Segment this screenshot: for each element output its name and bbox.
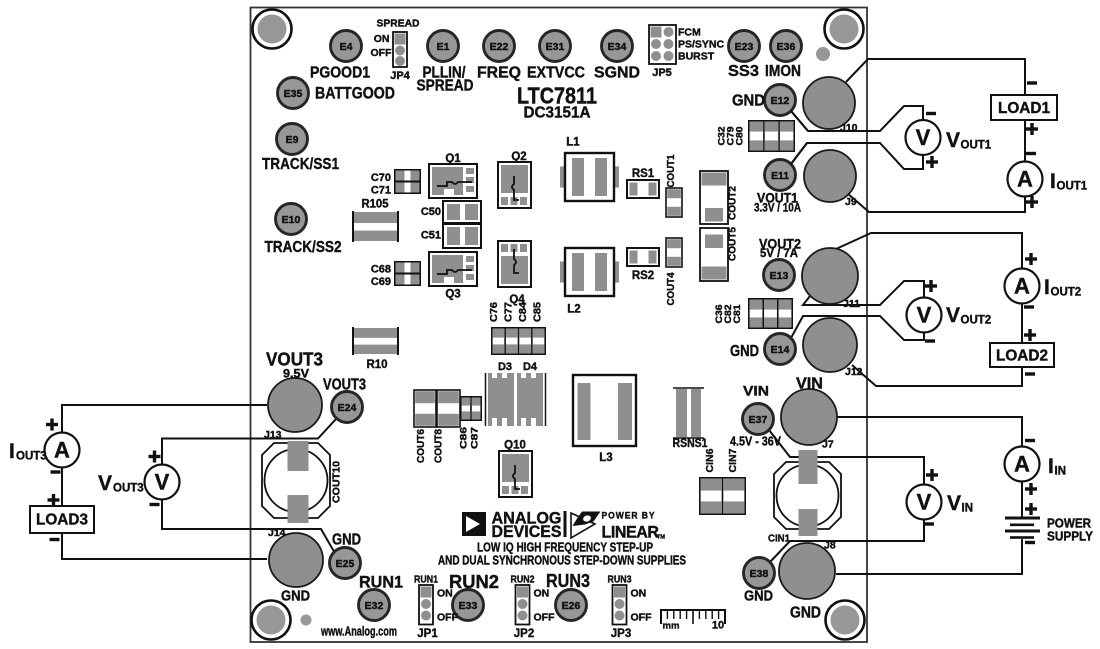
svg-text:I: I [9,440,15,463]
svg-text:mm: mm [663,621,680,632]
svg-text:E26: E26 [562,600,581,612]
svg-text:POWER BY: POWER BY [602,511,656,521]
svg-text:J13: J13 [264,429,282,441]
svg-text:FCM: FCM [678,27,701,39]
svg-text:E24: E24 [338,402,357,414]
svg-text:E31: E31 [546,41,565,53]
svg-text:JP1: JP1 [417,628,438,640]
svg-text:Q1: Q1 [445,153,461,165]
svg-text:OUT2: OUT2 [1051,287,1082,299]
svg-text:E37: E37 [749,414,768,426]
svg-text:OUT1: OUT1 [961,140,992,152]
svg-text:OFF: OFF [371,47,393,59]
svg-text:LOAD3: LOAD3 [36,512,88,529]
svg-text:VIN: VIN [796,376,823,393]
svg-text:C77: C77 [504,302,515,322]
svg-text:GND: GND [730,343,759,360]
svg-text:POWER: POWER [1047,517,1091,531]
svg-text:CIN6: CIN6 [704,448,716,472]
svg-text:V: V [98,472,112,495]
svg-text:BATTGOOD: BATTGOOD [315,84,395,103]
svg-text:C85: C85 [533,302,544,322]
svg-text:ON: ON [374,33,390,45]
svg-text:IN: IN [1055,466,1067,478]
svg-text:VOUT3: VOUT3 [323,377,366,394]
svg-text:E13: E13 [770,270,789,282]
svg-text:E10: E10 [282,214,301,226]
svg-text:COUT5: COUT5 [727,227,739,261]
svg-text:JP4: JP4 [390,70,410,82]
svg-text:GND: GND [790,605,821,622]
svg-text:E12: E12 [771,95,790,107]
svg-text:www.Analog.com: www.Analog.com [320,625,397,639]
svg-text:RS2: RS2 [632,270,654,282]
svg-text:CIN1: CIN1 [768,533,790,545]
svg-text:C80: C80 [735,127,745,146]
svg-text:PGOOD1: PGOOD1 [310,65,370,82]
svg-text:BURST: BURST [678,51,715,63]
svg-text:TM: TM [657,535,665,541]
svg-text:E11: E11 [771,170,789,182]
svg-text:E14: E14 [771,344,790,356]
svg-text:SGND: SGND [594,65,640,82]
svg-text:RUN2: RUN2 [511,575,535,586]
svg-text:COUT2: COUT2 [727,186,739,220]
svg-text:RUN2: RUN2 [449,572,499,592]
svg-text:GND: GND [732,93,765,110]
svg-text:OUT2: OUT2 [961,315,992,327]
svg-text:OFF: OFF [631,612,653,624]
svg-text:J12: J12 [845,366,863,378]
svg-text:J10: J10 [840,122,858,134]
svg-text:C81: C81 [732,305,742,324]
svg-text:I: I [1044,276,1050,299]
svg-text:9.5V: 9.5V [283,367,309,381]
svg-text:AND DUAL SYNCHRONOUS STEP-DOWN: AND DUAL SYNCHRONOUS STEP-DOWN SUPPLIES [438,554,686,568]
svg-text:L3: L3 [599,452,612,464]
svg-text:V: V [916,125,931,150]
svg-text:D3: D3 [498,361,512,373]
svg-text:RUN3: RUN3 [546,571,590,591]
svg-text:LOAD1: LOAD1 [998,100,1050,117]
svg-text:E25: E25 [336,558,355,570]
svg-text:C51: C51 [421,230,441,242]
svg-text:IMON: IMON [765,63,801,80]
svg-text:RUN1: RUN1 [414,575,438,586]
svg-text:C87: C87 [470,427,481,449]
svg-text:PS/SYNC: PS/SYNC [678,39,725,51]
svg-text:V: V [947,492,961,515]
svg-text:TRACK/SS2: TRACK/SS2 [265,239,342,256]
svg-text:J7: J7 [822,439,834,451]
svg-text:VIN: VIN [743,383,769,399]
svg-text:IN: IN [962,503,974,515]
svg-text:V: V [917,303,932,328]
svg-text:DC3151A: DC3151A [524,105,591,122]
svg-text:OUT3: OUT3 [16,451,47,463]
svg-text:A: A [1014,452,1030,477]
svg-text:E23: E23 [735,41,754,53]
svg-text:EXTVCC: EXTVCC [527,65,585,82]
svg-text:5V / 7A: 5V / 7A [760,248,798,260]
svg-text:E1: E1 [437,41,450,53]
svg-text:C50: C50 [421,206,441,218]
svg-text:A: A [1014,274,1030,299]
svg-text:E22: E22 [490,41,509,53]
svg-text:GND: GND [744,589,773,605]
svg-text:J11: J11 [843,298,860,310]
svg-text:RUN3: RUN3 [608,575,632,586]
svg-text:Q10: Q10 [504,440,526,452]
svg-text:Q3: Q3 [445,289,460,301]
svg-text:LINEAR: LINEAR [602,523,659,542]
svg-text:SUPPLY: SUPPLY [1047,530,1094,544]
svg-text:SS3: SS3 [728,63,759,80]
svg-text:COUT4: COUT4 [665,272,677,305]
svg-text:JP3: JP3 [611,628,631,640]
svg-text:V: V [946,129,960,152]
svg-text:C71: C71 [371,185,391,197]
svg-text:LOW IQ HIGH FREQUENCY STEP-UP: LOW IQ HIGH FREQUENCY STEP-UP [477,541,653,555]
svg-text:TRACK/SS1: TRACK/SS1 [262,156,339,173]
svg-text:A: A [54,438,70,463]
svg-text:R10: R10 [366,359,387,371]
svg-text:FREQ: FREQ [477,65,521,82]
svg-text:10: 10 [712,620,724,632]
svg-text:R105: R105 [362,199,390,211]
svg-text:OUT1: OUT1 [1057,181,1088,193]
svg-text:GND: GND [332,532,361,549]
svg-text:D4: D4 [523,361,538,373]
svg-text:E36: E36 [777,41,796,53]
svg-text:E4: E4 [340,41,353,53]
svg-text:C76: C76 [489,302,500,322]
svg-text:COUT6: COUT6 [415,429,427,463]
svg-text:SPREAD: SPREAD [417,78,474,95]
svg-text:C84: C84 [518,302,529,322]
svg-text:A: A [1017,167,1033,192]
svg-text:LOAD2: LOAD2 [996,348,1048,365]
svg-text:SPREAD: SPREAD [377,18,420,30]
svg-text:J8: J8 [824,540,836,552]
svg-text:L1: L1 [566,137,580,149]
svg-text:J9: J9 [845,196,857,208]
svg-text:JP5: JP5 [652,67,672,79]
svg-text:4.5V - 36V: 4.5V - 36V [730,435,782,449]
svg-text:JP2: JP2 [514,628,534,640]
svg-text:E9: E9 [286,134,299,146]
svg-text:E38: E38 [750,568,769,580]
svg-text:V: V [155,470,170,495]
svg-text:COUT8: COUT8 [433,429,445,463]
svg-text:E34: E34 [608,41,627,53]
svg-text:RUN1: RUN1 [359,574,403,592]
svg-text:I: I [1048,455,1054,478]
svg-text:V: V [946,304,960,327]
svg-text:RSNS1: RSNS1 [673,438,709,450]
svg-text:COUT1: COUT1 [665,154,677,187]
svg-text:RS1: RS1 [632,168,655,180]
svg-text:E32: E32 [365,600,384,612]
svg-text:E35: E35 [284,88,303,100]
svg-text:I: I [1050,170,1056,193]
svg-text:ON: ON [631,588,647,600]
svg-text:C69: C69 [371,276,391,288]
svg-text:L2: L2 [567,304,580,316]
svg-text:3.3V / 10A: 3.3V / 10A [754,203,801,215]
svg-text:V: V [917,490,932,515]
svg-text:OUT3: OUT3 [113,483,144,495]
svg-text:CIN7: CIN7 [727,448,739,472]
svg-text:OFF: OFF [534,612,556,624]
svg-text:C68: C68 [371,264,391,276]
svg-text:C86: C86 [459,427,470,449]
svg-text:Q2: Q2 [511,151,526,163]
svg-text:E33: E33 [459,600,478,612]
svg-text:GND: GND [281,589,310,605]
svg-text:DEVICES: DEVICES [492,523,562,541]
svg-text:C70: C70 [371,172,391,184]
svg-text:COUT10: COUT10 [331,461,343,503]
svg-text:J14: J14 [268,527,286,539]
svg-text:OFF: OFF [437,612,459,624]
